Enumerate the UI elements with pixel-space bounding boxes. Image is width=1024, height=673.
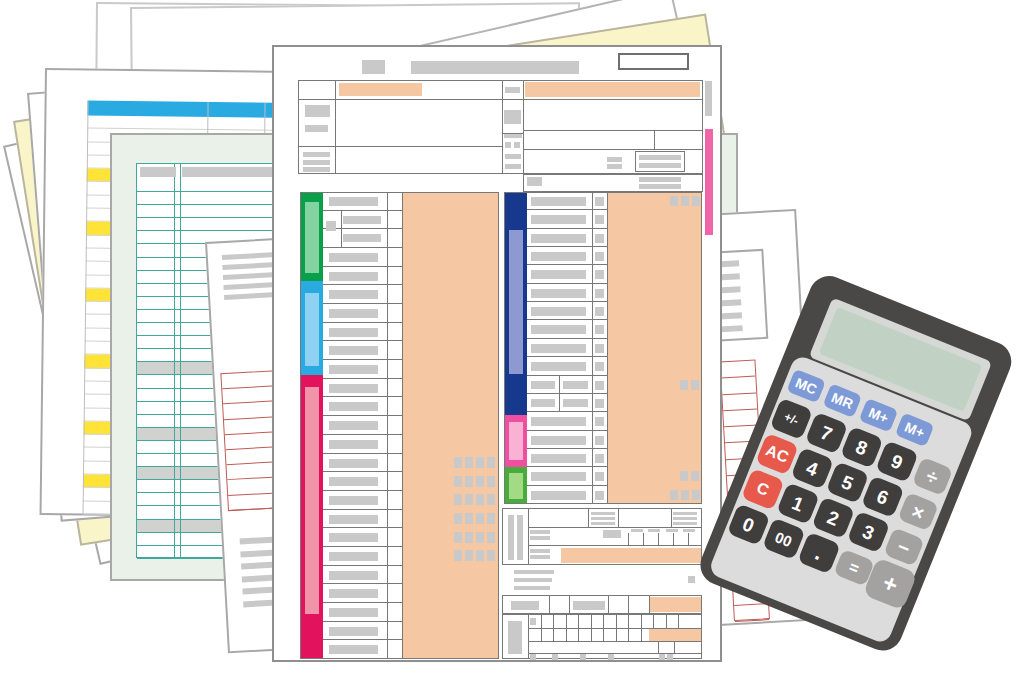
cell-divider (678, 615, 679, 628)
text-line (514, 570, 554, 574)
header-label-bar (303, 152, 330, 157)
cell-divider (528, 509, 529, 564)
cell-divider (674, 641, 675, 653)
cell-divider (502, 133, 523, 134)
cell-divider (541, 615, 542, 628)
cell-divider (673, 533, 674, 545)
digit-box (530, 618, 536, 625)
cell-divider (528, 545, 701, 546)
tax-form-sheet (272, 45, 722, 662)
digit-box (580, 654, 586, 660)
vertical-label-bar (508, 621, 522, 654)
title-bar (411, 61, 579, 74)
row-label-bar (530, 530, 550, 534)
cell-divider (528, 615, 529, 658)
cell-divider (569, 596, 570, 613)
cell-divider (523, 80, 524, 174)
red-table-row (734, 604, 769, 622)
row-label-bar (511, 601, 539, 610)
header-label-bar (505, 87, 520, 93)
cell-divider (688, 533, 689, 545)
header-peach-cell (525, 82, 700, 97)
cell-divider (549, 596, 550, 613)
totals-row-panel (502, 595, 702, 614)
mini-dash (666, 529, 678, 532)
amount-cell (649, 629, 701, 641)
text-line (514, 586, 550, 590)
cell-divider (591, 628, 592, 641)
digit-box (659, 654, 665, 660)
digit-box (608, 654, 614, 660)
header-label-bar (607, 157, 622, 162)
gray-index-tab (705, 81, 712, 116)
cell-divider (618, 509, 619, 527)
header-label-bar (505, 154, 521, 159)
cell-divider (298, 99, 703, 100)
number-box (618, 53, 689, 70)
cell-divider (654, 130, 655, 149)
summary-panel (502, 508, 702, 565)
cell-divider (641, 628, 642, 641)
cell-divider (671, 509, 672, 527)
header-label-bar (303, 167, 330, 172)
header-cell-bar (140, 167, 176, 177)
cell-divider (658, 533, 659, 545)
left-group-border (300, 192, 499, 659)
digit-box (530, 654, 536, 660)
vertical-label-bar (508, 515, 514, 560)
mini-dash (631, 529, 643, 532)
mini-text-line (591, 522, 615, 525)
cell-divider (578, 615, 579, 628)
cell-divider (335, 80, 336, 174)
cell-divider (523, 130, 703, 131)
cell-divider (566, 628, 567, 641)
red-table-row (723, 409, 758, 427)
header-label-bar (607, 164, 622, 169)
amount-cell (650, 597, 701, 612)
cell-divider (566, 615, 567, 628)
cell-divider (641, 615, 642, 628)
row-label-bar (603, 530, 621, 538)
cell-divider (603, 628, 604, 641)
text-line (514, 578, 552, 582)
header-ext-box (523, 174, 703, 192)
cell-divider (628, 596, 629, 613)
row-label-bar (530, 549, 550, 553)
title-stamp-box (362, 60, 385, 74)
cell-divider (603, 615, 604, 628)
mini-dash (648, 529, 660, 532)
header-label-bar (505, 164, 521, 169)
header-label-bar (514, 142, 520, 148)
cell-divider (578, 628, 579, 641)
cell-divider (541, 628, 542, 641)
cell-divider (591, 615, 592, 628)
cell-divider (588, 509, 589, 527)
header-peach-cell (339, 83, 422, 96)
header-label-bar (305, 105, 330, 117)
cell-divider (628, 615, 629, 628)
paperwork-calculator-illustration: MCMRM+M++/-789÷AC456×C123−000.=+ (0, 0, 1024, 673)
mini-text-line (591, 517, 615, 520)
checkbox-square (688, 576, 695, 583)
mini-dash (683, 529, 695, 532)
digit-box (667, 654, 673, 660)
cell-divider (643, 533, 644, 545)
digit-box (552, 654, 558, 660)
cell-divider (658, 641, 659, 653)
mini-text-line (591, 512, 615, 515)
cell-divider (653, 615, 654, 628)
cell-divider (528, 527, 701, 528)
row-label-bar (530, 536, 550, 540)
amount-cell (561, 548, 701, 563)
right-group-border (504, 192, 702, 504)
pink-index-tab (705, 129, 713, 235)
detail-grid-panel (502, 614, 702, 659)
cell-divider (666, 615, 667, 628)
cell-divider (628, 628, 629, 641)
cell-divider (553, 615, 554, 628)
header-label-bar (504, 110, 521, 124)
mini-text-line (673, 517, 697, 520)
cell-divider (608, 596, 609, 613)
red-table-row (721, 361, 756, 379)
cell-divider (553, 628, 554, 641)
mini-text-line (673, 512, 697, 515)
red-table-row (722, 393, 757, 411)
cell-divider (628, 533, 629, 545)
row-label-bar (530, 555, 550, 559)
header-label-bar (303, 160, 330, 165)
column-line (174, 164, 175, 557)
header-label-bar (504, 134, 522, 138)
cell-divider (616, 628, 617, 641)
row-label-bar (573, 601, 605, 610)
cell-divider (298, 146, 502, 147)
cell-divider (502, 80, 503, 174)
mini-text-line (673, 522, 697, 525)
header-label-bar (305, 125, 328, 132)
cell-divider (528, 641, 701, 642)
column-line (180, 164, 181, 557)
vertical-label-bar (517, 515, 523, 560)
cell-divider (523, 149, 703, 150)
header-label-bar (505, 142, 511, 148)
red-table-row (721, 377, 756, 395)
header-inner-box (635, 151, 685, 172)
cell-divider (616, 615, 617, 628)
